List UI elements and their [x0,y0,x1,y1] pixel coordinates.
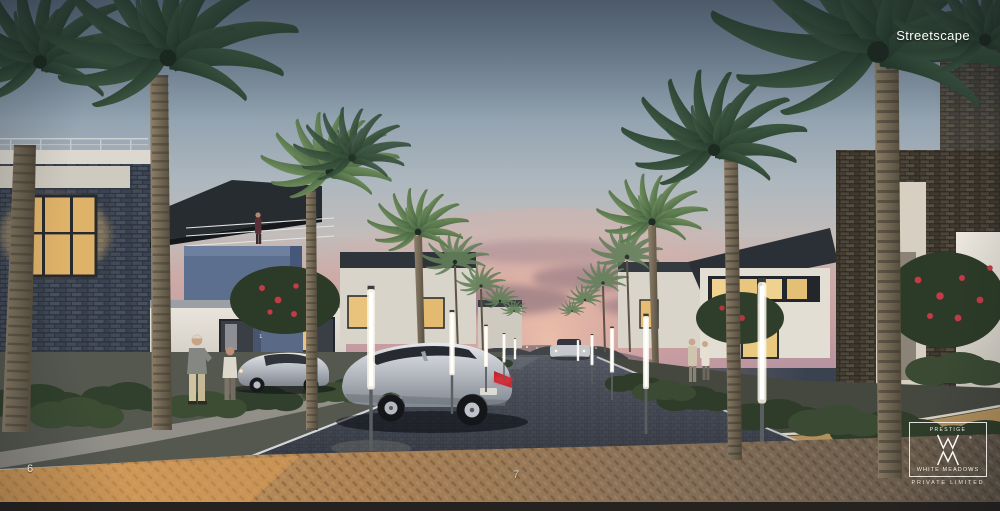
page-number-center: 7 [513,469,519,481]
scene-art [0,0,1000,511]
page-number-left: 6 [27,463,33,475]
logo-brand: PRESTIGE [912,427,984,433]
streetscape-rendering: Streetscape 1 6 7 PRESTIGE ® WHITE MEADO… [0,0,1000,511]
page-caption: Streetscape [896,28,970,43]
logo-name: WHITE MEADOWS [912,467,984,473]
registered-mark: ® [969,435,972,440]
monogram-wm [933,434,963,466]
logo-box: PRESTIGE ® WHITE MEADOWS [909,422,987,477]
logo-suffix: PRIVATE LIMITED [909,480,987,486]
address-marker: 1 [259,334,262,340]
vignette [0,0,1000,511]
white-meadows-logo: PRESTIGE ® WHITE MEADOWS PRIVATE LIMITED [909,422,987,486]
white-meadows-monogram [933,434,963,466]
